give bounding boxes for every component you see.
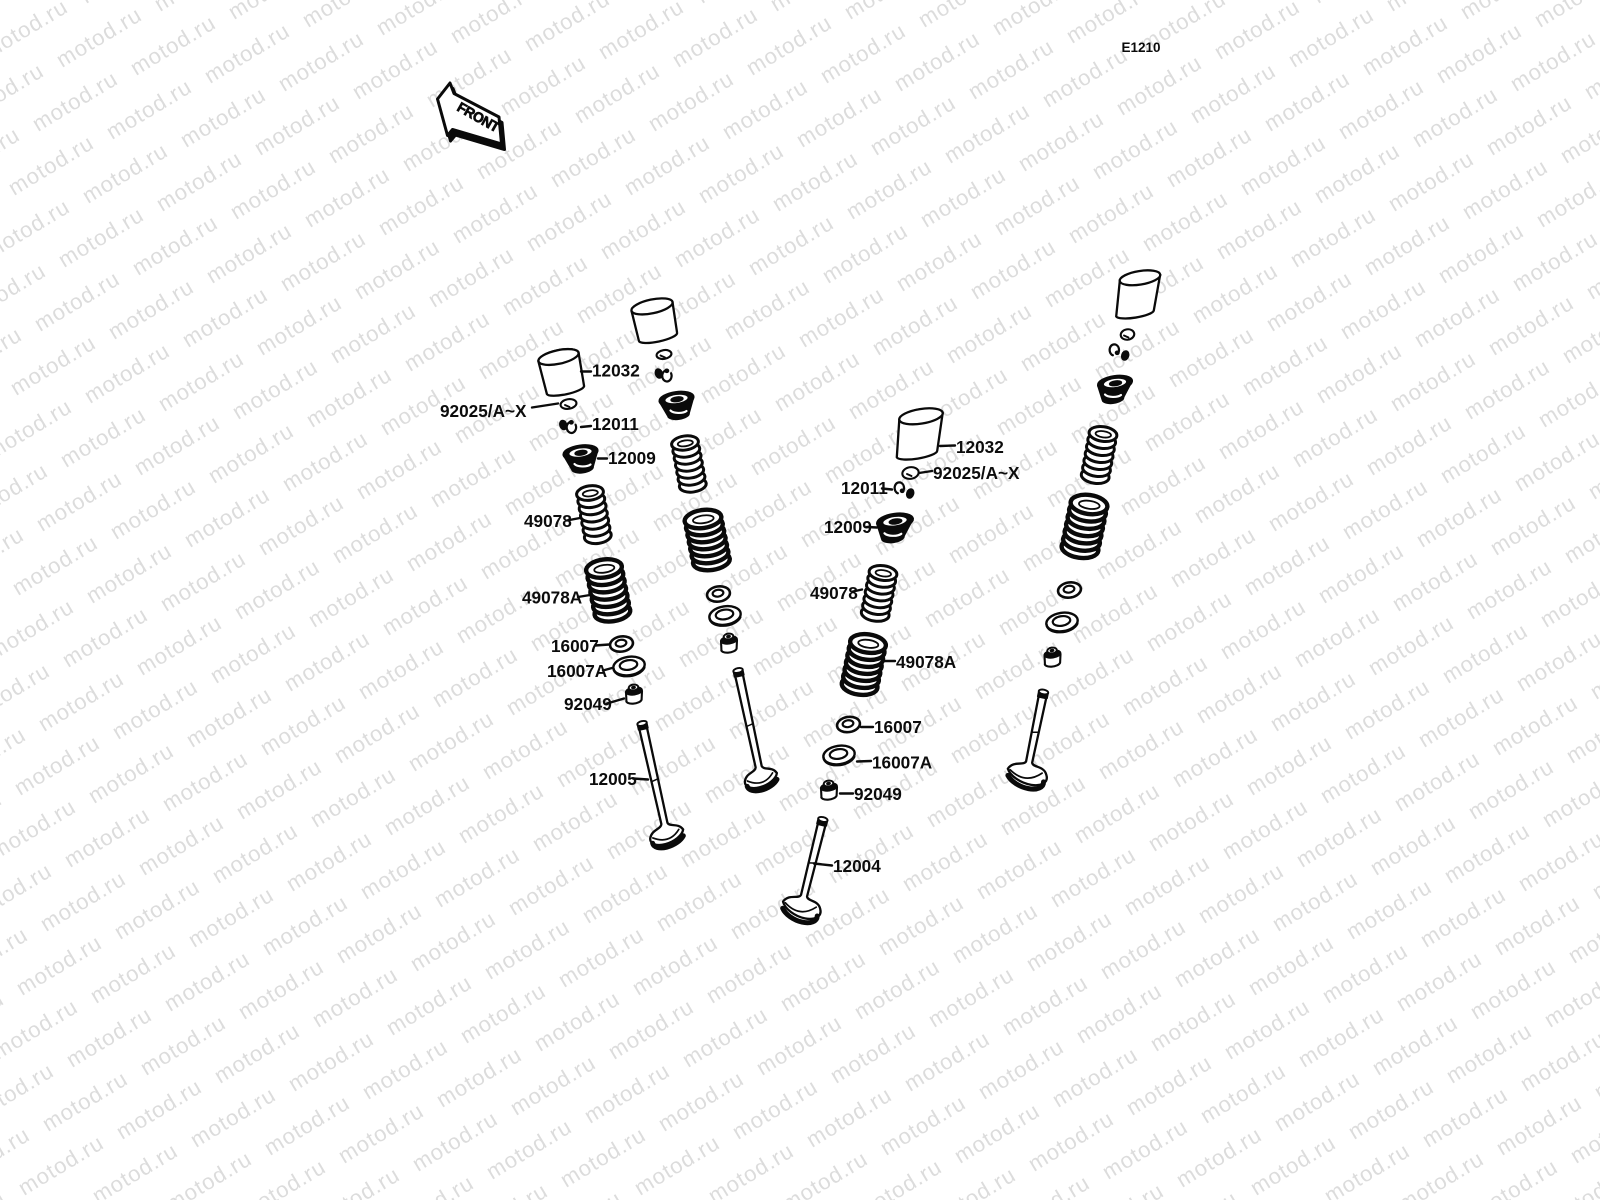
- svg-text:12009: 12009: [608, 448, 656, 468]
- svg-text:12011: 12011: [592, 414, 639, 434]
- svg-text:92049: 92049: [564, 694, 612, 714]
- svg-text:49078: 49078: [810, 583, 858, 603]
- svg-text:12032: 12032: [592, 361, 640, 381]
- svg-text:16007: 16007: [551, 636, 599, 656]
- svg-text:16007A: 16007A: [872, 753, 932, 773]
- svg-text:92049: 92049: [854, 784, 902, 804]
- svg-text:16007: 16007: [874, 717, 922, 737]
- svg-text:49078A: 49078A: [896, 652, 956, 672]
- svg-text:12032: 12032: [956, 437, 1004, 457]
- svg-text:12009: 12009: [824, 517, 872, 537]
- svg-text:E1210: E1210: [1122, 40, 1161, 55]
- svg-text:92025/A~X: 92025/A~X: [933, 463, 1020, 483]
- svg-text:49078: 49078: [524, 511, 572, 531]
- svg-text:16007A: 16007A: [547, 661, 607, 681]
- svg-text:12005: 12005: [589, 769, 637, 789]
- svg-text:12004: 12004: [833, 856, 881, 876]
- svg-text:92025/A~X: 92025/A~X: [440, 401, 527, 421]
- svg-text:49078A: 49078A: [522, 588, 582, 608]
